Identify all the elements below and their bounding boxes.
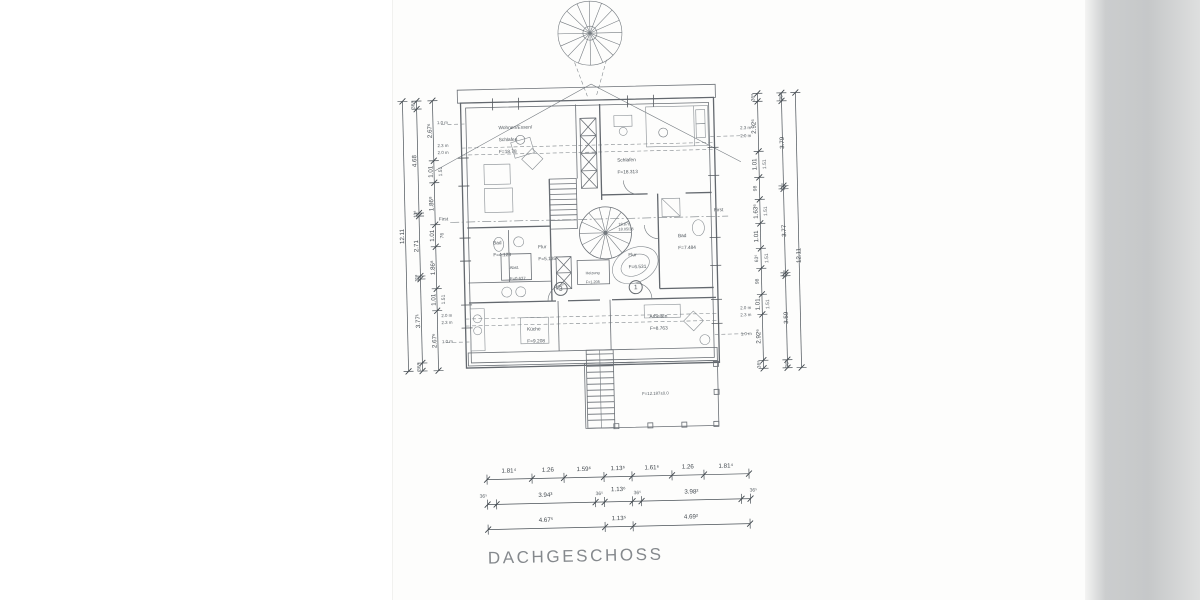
ridge-label-right: First [714,208,723,213]
room-label-heizung: Heizung F=1.205 [581,266,600,290]
room-label-flur-links: Flur F=5.135 [533,239,557,269]
dim-label: 4.69² [684,513,698,520]
height-mark: 2.0 m [740,133,751,138]
dim-label: 1.51 [763,206,769,216]
dim-label: 36⁸ [416,363,422,371]
dim-label: 11⁸ [782,270,788,277]
dim-label: 1.81⁴ [718,463,733,470]
dim-label: 36⁸ [784,360,790,368]
dim-label: 11⁸ [414,274,420,281]
dim-label: 1.51 [441,295,447,305]
dim-label: 1.01 [753,230,760,242]
dim-label: 63⁶ [754,255,760,263]
dim-label: 1.51 [764,253,770,263]
dim-label: 4.68 [411,155,418,167]
dim-label: 12.11 [399,229,406,244]
room-label-flur-rechts: Flur F=6.531 [623,247,647,277]
dim-label: 1.26 [542,467,554,474]
height-mark: 2.0 m [441,313,452,318]
floorplan-drawing [0,0,1200,614]
floorplan-sheet: Wohnen/Essen/ Schlafen F=18.78 Schlafen … [0,0,1200,614]
dim-label: 12.11 [795,248,802,263]
dim-label: 1.61⁶ [644,464,659,471]
dim-label: 1.59⁶ [576,466,591,473]
height-mark: 2.3 m [441,320,452,325]
dim-label: 1.81⁴ [501,467,516,474]
dim-label: 2.71 [413,240,420,252]
height-mark: 2.3 m [740,312,751,317]
dim-label: 98 [752,186,758,192]
room-label-bad-rechts: Bad F=7.484 [672,228,696,258]
dim-label: 2.92⁶ [750,119,757,134]
dim-label: 36⁸ [756,360,762,368]
dim-label: 1.01 [751,158,758,170]
ridge-label-left: First [439,217,448,222]
room-label-kueche: Küche F=9.208 [521,321,545,351]
stair-note: 18.876 18.05/38 [618,222,633,232]
dim-label: 36⁵ [480,494,488,500]
dim-label: 1.86⁸ [430,260,437,275]
dim-label: 4.67⁵ [539,517,554,524]
dim-label: 1.01 [427,166,434,178]
dim-label: 1.13⁶ [611,486,626,493]
terrace-area-label: F=12.187±0.0 [642,390,669,396]
dim-label: 1.51 [762,159,768,169]
dim-label: 36⁸ [750,94,756,102]
dim-label: 3.77¹ [415,314,422,328]
dim-label: 36⁸ [410,101,416,109]
dim-label: 1.01 [755,298,762,310]
dim-label: 2.92⁶ [755,329,762,344]
height-mark: 2.3 m [437,143,448,148]
room-label-schlafen: Schlafen F=18.313 [612,152,638,182]
dim-label: 3.98² [684,488,698,495]
height-mark: 2.3 m [740,125,751,130]
room-label-arbeiten: Arbeiten F=8.763 [644,308,668,338]
dim-label: 3.77 [781,225,788,237]
dim-label: 1.01 [430,294,437,306]
dim-label: 36⁵ [596,491,604,497]
height-mark: 1.0 m [741,331,752,336]
dim-label: 36⁵ [749,487,757,493]
dim-label: 3.79 [779,137,786,149]
dim-label: 76 [439,233,445,239]
dim-label: 98 [755,279,761,285]
dim-label: 1.86⁸ [428,196,435,211]
height-mark: 1.0 m [437,120,448,125]
dim-label: 2.67⁶ [431,333,438,348]
height-mark: 1.0 m [442,339,453,344]
dim-label: 2.67⁶ [426,123,433,138]
height-mark: 2.0 m [438,150,449,155]
dim-label: 36⁸ [778,93,784,101]
room-label-wohnen: Wohnen/Essen/ Schlafen F=18.78 [493,119,533,162]
dim-label: 3.94³ [538,492,552,499]
dim-label: 11⁸ [413,210,419,217]
dim-label: 3.59 [783,312,790,324]
dim-label: 1.01 [429,230,436,242]
dim-label: 1.51 [438,167,444,177]
dim-label: 1.63⁶ [752,204,759,219]
dim-label: 1.26 [682,463,694,470]
dim-label: 11⁸ [780,183,786,190]
height-mark: 2.0 m [740,305,751,310]
dim-label: 1.13⁶ [610,465,625,472]
dim-label: 1.13⁵ [612,515,627,522]
page-title: DACHGESCHOSS [488,545,664,569]
dim-label: 1.51 [765,299,771,309]
room-label-abst: Abst. F=0.637 [505,260,526,287]
dim-label: 36⁵ [634,490,642,496]
